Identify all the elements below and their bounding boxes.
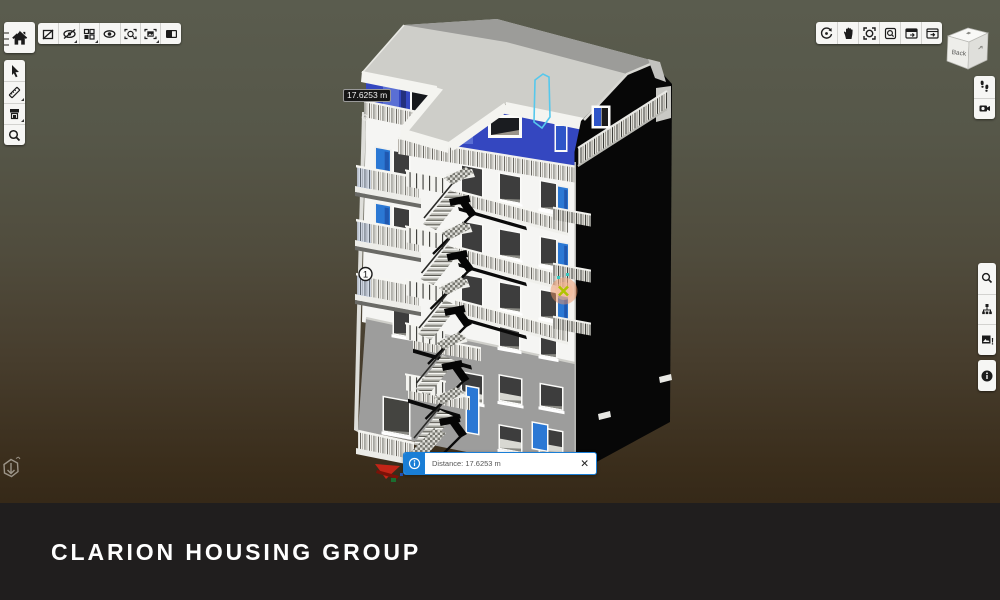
svg-text:!: ! xyxy=(991,336,994,346)
svg-text:1: 1 xyxy=(363,270,368,281)
